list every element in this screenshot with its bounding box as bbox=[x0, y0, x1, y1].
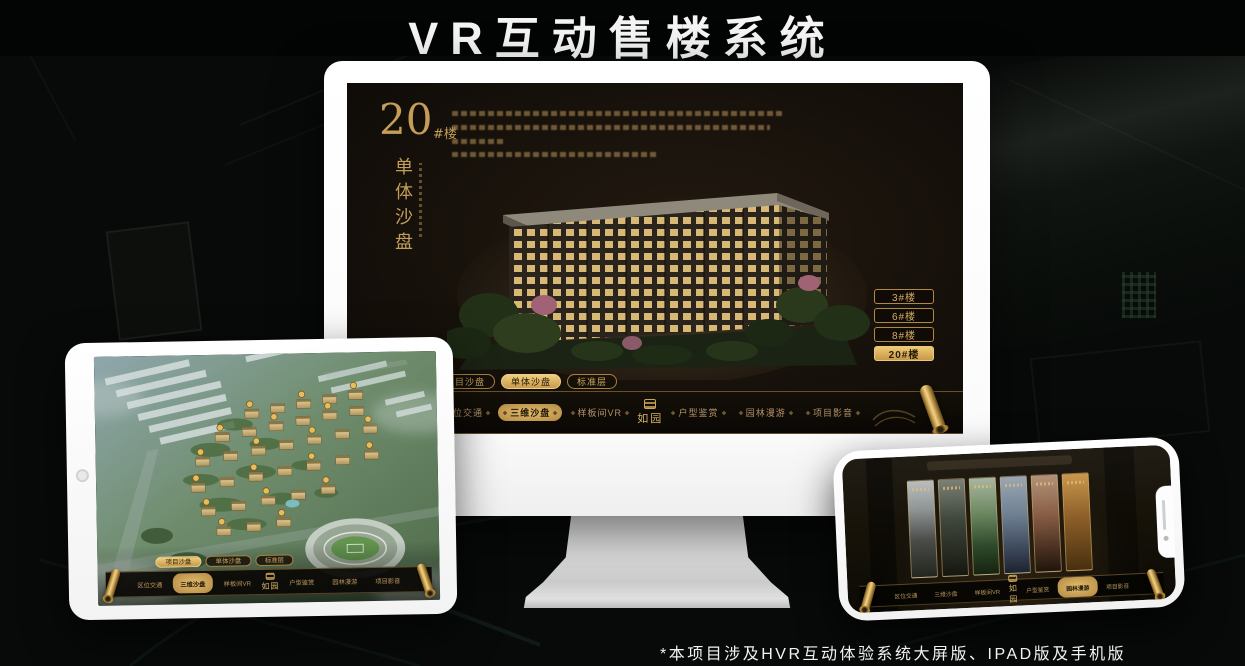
tab-label: 标准层 bbox=[265, 556, 284, 565]
brand-logo-text: 如园 bbox=[637, 410, 663, 426]
nav-item-label: 园林漫游 bbox=[746, 406, 786, 419]
diamond-ornament-icon bbox=[503, 410, 508, 415]
nav-item-floorplans[interactable]: 户型鉴赏 bbox=[666, 404, 730, 421]
scene-panel[interactable] bbox=[1000, 475, 1031, 574]
tab-label: 单体沙盘 bbox=[511, 375, 551, 388]
scroll-handle-icon[interactable] bbox=[103, 568, 121, 601]
seal-icon bbox=[266, 572, 275, 579]
nav-item-label: 三维沙盘 bbox=[510, 406, 550, 419]
nav-item-floorplans[interactable]: 户型鉴赏 bbox=[1017, 578, 1058, 600]
tab-standard-floor[interactable]: 标准层 bbox=[255, 554, 293, 566]
tab-single-sandbox[interactable]: 单体沙盘 bbox=[501, 374, 561, 389]
brand-logo-text: 如园 bbox=[261, 580, 279, 591]
swirl-ornament-icon bbox=[871, 404, 917, 430]
phone-nav-items: 区位交通 三维沙盘 样板间VR 如园 户型鉴赏 园林漫游 项目影音 bbox=[885, 574, 1138, 605]
nav-item-label: 区位交通 bbox=[894, 592, 917, 601]
nav-item-garden-roam[interactable]: 园林漫游 bbox=[1057, 576, 1098, 598]
floor-button-8[interactable]: 8#楼 bbox=[874, 327, 934, 342]
scroll-handle-icon[interactable] bbox=[918, 383, 947, 433]
nav-item-garden-roam[interactable]: 园林漫游 bbox=[734, 404, 798, 421]
nav-item-model-room-vr[interactable]: 样板间VR bbox=[215, 572, 258, 593]
nav-item-model-room-vr[interactable]: 样板间VR bbox=[965, 580, 1009, 602]
diamond-ornament-icon bbox=[553, 410, 558, 415]
nav-item-location-traffic[interactable]: 区位交通 bbox=[885, 584, 926, 606]
interior-eave bbox=[927, 455, 1072, 471]
diamond-ornament-icon bbox=[856, 410, 861, 415]
nav-item-label: 项目影音 bbox=[375, 577, 400, 586]
ipad-camera-icon bbox=[76, 469, 89, 482]
phone-nav-bar: 区位交通 三维沙盘 样板间VR 如园 户型鉴赏 园林漫游 项目影音 bbox=[859, 572, 1164, 608]
floor-button-label: 20#楼 bbox=[889, 346, 920, 361]
ipad-nav-items: 区位交通 三维沙盘 样板间VR 如园 户型鉴赏 园林漫游 项目影音 bbox=[130, 567, 408, 596]
scroll-handle-icon[interactable] bbox=[1146, 568, 1165, 599]
nav-item-project-media[interactable]: 项目影音 bbox=[801, 404, 865, 421]
nav-item-label: 区位交通 bbox=[137, 581, 162, 590]
scene-panel[interactable] bbox=[907, 479, 938, 578]
scene-gallery bbox=[907, 472, 1093, 578]
description-line bbox=[452, 111, 782, 116]
tab-label: 项目沙盘 bbox=[166, 557, 192, 566]
nav-item-label: 三维沙盘 bbox=[934, 590, 957, 599]
vertical-deco-line bbox=[419, 163, 422, 237]
nav-item-project-media[interactable]: 项目影音 bbox=[1097, 574, 1138, 596]
floor-button-label: 3#楼 bbox=[892, 289, 916, 304]
nav-item-label: 样板间VR bbox=[975, 588, 1001, 597]
ipad-screen: 项目沙盘 单体沙盘 标准层 区位交通 三维沙盘 样板间VR 如园 户型鉴赏 园林… bbox=[94, 351, 440, 606]
floor-button-label: 8#楼 bbox=[892, 327, 916, 342]
headline-subtitle: 单体沙盘 bbox=[389, 157, 415, 257]
diamond-ornament-icon bbox=[738, 410, 743, 415]
scene-panel[interactable] bbox=[969, 477, 1000, 576]
nav-item-label: 项目影音 bbox=[813, 406, 853, 419]
seal-icon bbox=[1008, 575, 1017, 582]
nav-item-label: 户型鉴赏 bbox=[678, 406, 718, 419]
monitor-nav-items: 区位交通 三维沙盘 样板间VR 如园 户型鉴赏 园林漫游 项目影音 bbox=[431, 392, 865, 433]
page-title: VR互动售楼系统 bbox=[0, 2, 1245, 67]
scene-panel[interactable] bbox=[1031, 474, 1062, 573]
brand-logo: 如园 bbox=[637, 399, 663, 426]
diamond-ornament-icon bbox=[625, 410, 630, 415]
tab-standard-floor[interactable]: 标准层 bbox=[567, 374, 617, 389]
brand-logo: 如园 bbox=[261, 572, 279, 591]
tab-label: 标准层 bbox=[577, 375, 607, 388]
nav-item-label: 样板间VR bbox=[578, 406, 623, 419]
nav-item-label: 园林漫游 bbox=[332, 578, 357, 587]
background-lit-windows bbox=[1122, 272, 1156, 318]
building-render bbox=[447, 155, 877, 380]
phone-screen: 区位交通 三维沙盘 样板间VR 如园 户型鉴赏 园林漫游 项目影音 bbox=[842, 445, 1177, 614]
nav-item-label: 户型鉴赏 bbox=[1026, 586, 1049, 595]
diamond-ornament-icon bbox=[671, 410, 676, 415]
nav-item-3d-sandbox[interactable]: 三维沙盘 bbox=[172, 573, 212, 594]
diamond-ornament-icon bbox=[486, 410, 491, 415]
nav-item-model-room-vr[interactable]: 样板间VR bbox=[566, 404, 635, 421]
monitor-tab-row: 项目沙盘 单体沙盘 标准层 bbox=[435, 374, 617, 389]
floor-button-group: 3#楼 6#楼 8#楼 20#楼 bbox=[874, 289, 934, 361]
scene-panel[interactable] bbox=[1062, 472, 1093, 571]
tab-label: 单体沙盘 bbox=[216, 556, 242, 565]
building-number-headline: 20 bbox=[379, 99, 432, 141]
nav-item-label: 园林漫游 bbox=[1066, 584, 1089, 593]
phone-notch bbox=[1155, 486, 1175, 559]
nav-item-3d-sandbox[interactable]: 三维沙盘 bbox=[925, 582, 966, 604]
description-line bbox=[452, 125, 770, 130]
scene-panel[interactable] bbox=[938, 478, 969, 577]
diamond-ornament-icon bbox=[570, 410, 575, 415]
tab-single-sandbox[interactable]: 单体沙盘 bbox=[205, 555, 251, 567]
seal-icon bbox=[644, 399, 656, 409]
diamond-ornament-icon bbox=[806, 410, 811, 415]
nav-item-3d-sandbox[interactable]: 三维沙盘 bbox=[498, 404, 562, 421]
diamond-ornament-icon bbox=[788, 410, 793, 415]
speaker-icon bbox=[1162, 500, 1166, 530]
nav-item-location-traffic[interactable]: 区位交通 bbox=[130, 574, 170, 595]
camera-icon bbox=[1163, 536, 1168, 541]
nav-item-label: 样板间VR bbox=[223, 579, 251, 588]
nav-item-floorplans[interactable]: 户型鉴赏 bbox=[282, 571, 322, 592]
floor-button-label: 6#楼 bbox=[892, 308, 916, 323]
floor-button-20[interactable]: 20#楼 bbox=[874, 346, 934, 361]
nav-item-label: 项目影音 bbox=[1106, 582, 1129, 591]
diamond-ornament-icon bbox=[721, 410, 726, 415]
poster-stage: VR互动售楼系统 20 #楼 单体沙盘 bbox=[0, 0, 1245, 666]
nav-item-label: 三维沙盘 bbox=[180, 580, 205, 589]
floor-button-3[interactable]: 3#楼 bbox=[874, 289, 934, 304]
description-line bbox=[452, 139, 506, 144]
footnote-text: *本项目涉及HVR互动体验系统大屏版、IPAD版及手机版 bbox=[660, 640, 1126, 664]
tab-project-sandbox[interactable]: 项目沙盘 bbox=[155, 556, 201, 568]
nav-item-garden-roam[interactable]: 园林漫游 bbox=[325, 570, 365, 591]
background-plaque bbox=[106, 221, 203, 340]
nav-item-project-media[interactable]: 项目影音 bbox=[368, 569, 408, 590]
floor-button-6[interactable]: 6#楼 bbox=[874, 308, 934, 323]
nav-item-label: 户型鉴赏 bbox=[290, 578, 315, 587]
ipad-device: 项目沙盘 单体沙盘 标准层 区位交通 三维沙盘 样板间VR 如园 户型鉴赏 园林… bbox=[65, 337, 458, 621]
phone-device: 区位交通 三维沙盘 样板间VR 如园 户型鉴赏 园林漫游 项目影音 bbox=[832, 436, 1185, 622]
